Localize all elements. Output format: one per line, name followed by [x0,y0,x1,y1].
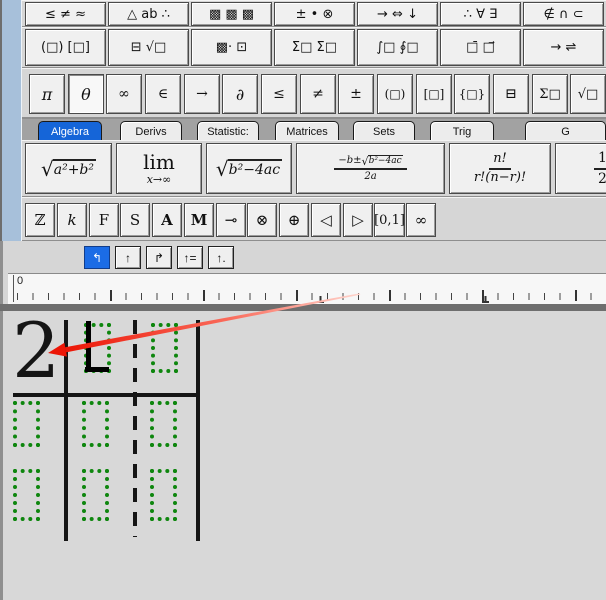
tab-geometry[interactable]: G [525,121,606,141]
smallbar-parens-template[interactable]: (□) [377,74,413,114]
template-sqrt-a2-b2[interactable]: √ a²+b² [25,143,112,194]
symbol-tensor[interactable]: ⊗ [247,203,277,237]
smallbar-fraction-template[interactable]: ⊟ [493,74,529,114]
equation-canvas[interactable]: 2 [3,311,606,600]
symbol-triangle-left[interactable]: ◁ [311,203,341,237]
matrix-slot-r3c3[interactable] [150,469,177,521]
letter-s[interactable]: S [120,203,150,237]
smallbar-less-equal[interactable]: ≤ [261,74,297,114]
symbol-direct-sum[interactable]: ⊕ [279,203,309,237]
radicand: b²−4ac [368,155,403,166]
smallbar-not-equal[interactable]: ≠ [300,74,336,114]
palette-logic-symbols[interactable]: ∴ ∀ ∃ [440,2,521,26]
tab-sets[interactable]: Sets [353,121,415,141]
tab-derivs[interactable]: Derivs [120,121,182,141]
tabwell-right[interactable]: ↱ [146,246,172,269]
matrix-cell-value: 2 [12,322,60,380]
combination-denominator: r!(n−r)! [474,170,526,186]
smallbar-pi[interactable]: π [29,74,65,114]
matrix-slot-r1c3[interactable] [151,323,178,373]
ruler-medium-tick [389,290,391,301]
smallbar-right-arrow[interactable]: → [184,74,220,114]
template-combination[interactable]: n! r!(n−r)! [449,143,551,194]
symbol-unit-interval[interactable]: [0,1] [374,203,405,237]
ruler-medium-tick [203,290,205,301]
smallbar-sum-template[interactable]: Σ□ [532,74,568,114]
ruler-tabstop-marker[interactable] [482,296,489,303]
smallbar-theta[interactable]: θ [68,74,104,114]
palette-integral-templates[interactable]: ∫□ ∮□ [357,29,438,66]
smallbar-element-of[interactable]: ∈ [145,74,181,114]
insertion-cursor-stem [86,321,91,371]
equation-editor-window: ≤ ≠ ≈ △ ab ∴ ▩ ▩ ▩ ± • ⊗ → ⇔ ↓ ∴ ∀ ∃ ∉ ∩… [0,0,606,600]
palette-overbar-templates[interactable]: □̄ □⃗ [440,29,521,66]
palette-relational-symbols[interactable]: ≤ ≠ ≈ [25,2,106,26]
tab-matrices[interactable]: Matrices [275,121,339,141]
matrix-slot-r2c1[interactable] [13,401,40,447]
template-quadratic-formula[interactable]: −b± √ b²−4ac 2a [296,143,445,194]
insertion-cursor-foot [85,367,109,372]
letter-field-f[interactable]: F [89,203,119,237]
template-one-half[interactable]: 1 2 [555,143,606,194]
ruler: 0 [8,273,606,304]
palette-embellishments[interactable]: ▩ ▩ ▩ [191,2,272,26]
matrix-slot-r2c3[interactable] [150,401,177,447]
matrix-slot-r2c2[interactable] [82,401,109,447]
quadratic-denominator: 2a [364,170,376,183]
tabwell-decimal[interactable]: ↑. [208,246,234,269]
palette-script-templates[interactable]: ▩· ⊡ [191,29,272,66]
ruler-tabstop-marker[interactable] [317,296,324,303]
smallbar-brackets-template[interactable]: [□] [416,74,452,114]
matrix-line-dashed [133,320,137,537]
tab-trig[interactable]: Trig [430,121,494,141]
smallbar-infinity[interactable]: ∞ [106,74,142,114]
half-numerator: 1 [594,150,606,169]
toolbar-drag-strip [2,0,22,241]
combination-numerator: n! [489,152,511,170]
template-limit[interactable]: lim x→∞ [116,143,202,194]
letter-fraktur-a[interactable]: A [152,203,182,237]
palette-labeled-arrow-templates[interactable]: → ⇌ [523,29,604,66]
matrix-line-vertical-2 [196,320,200,541]
palette-sum-templates[interactable]: Σ□ Σ□ [274,29,355,66]
palette-operator-symbols[interactable]: ± • ⊗ [274,2,355,26]
palette-fraction-radical-templates[interactable]: ⊟ √□ [108,29,189,66]
ruler-document-separator [0,304,606,311]
smallbar-root-template[interactable]: √□ [570,74,606,114]
tabwell-left[interactable]: ↑ [115,246,141,269]
symbol-triangle-right[interactable]: ▷ [343,203,373,237]
matrix-slot-r3c2[interactable] [82,469,109,521]
letter-k[interactable]: k [57,203,87,237]
template-discriminant-root[interactable]: √ b²−4ac [206,143,292,194]
palette-tab-bar: Algebra Derivs Statistic: Matrices Sets … [22,118,606,141]
letter-integers-z[interactable]: ℤ [25,203,55,237]
ruler-medium-tick [110,290,112,301]
palette-arrow-symbols[interactable]: → ⇔ ↓ [357,2,438,26]
symbol-infinity[interactable]: ∞ [406,203,436,237]
letter-fraktur-m[interactable]: M [184,203,214,237]
limit-operator: lim [143,152,175,172]
limit-subscript: x→∞ [147,174,172,185]
palette-fence-templates[interactable]: (□) [□] [25,29,106,66]
matrix-line-vertical-1 [64,320,68,541]
tabwell-equals[interactable]: ↑= [177,246,203,269]
radicand: b²−4ac [228,159,282,178]
ruler-margin-line [13,275,14,302]
symbol-multimap[interactable]: ⊸ [216,203,246,237]
tab-statistics[interactable]: Statistic: [197,121,259,141]
smallbar-plus-minus[interactable]: ± [338,74,374,114]
half-denominator: 2 [598,170,606,187]
palette-set-theory-symbols[interactable]: ∉ ∩ ⊂ [523,2,604,26]
quadratic-num-prefix: −b± [338,155,361,167]
smallbar-braces-template[interactable]: {□} [454,74,490,114]
tabwell-left-selected[interactable]: ↰ [84,246,110,269]
matrix-slot-r3c1[interactable] [13,469,40,521]
ruler-medium-tick [296,290,298,301]
ruler-origin-label: 0 [17,275,23,287]
ruler-ticks [17,293,606,300]
smallbar-partial[interactable]: ∂ [222,74,258,114]
tab-algebra[interactable]: Algebra [38,121,102,141]
ruler-medium-tick [575,290,577,301]
palette-spaces-ellipses[interactable]: △ ab ∴ [108,2,189,26]
radicand: a²+b² [53,159,96,178]
